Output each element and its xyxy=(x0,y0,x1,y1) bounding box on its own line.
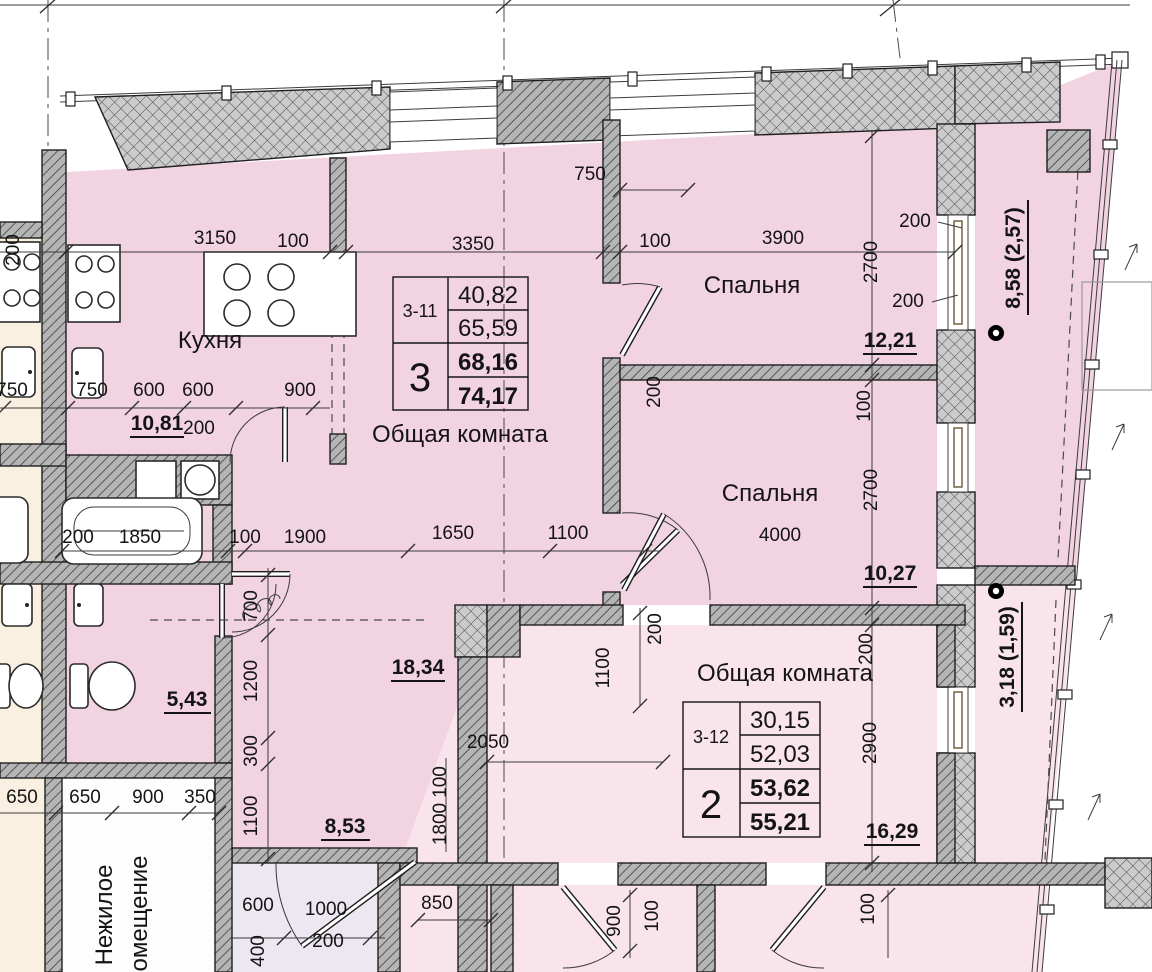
wall xyxy=(491,885,513,972)
wall xyxy=(603,358,620,513)
dimension-label: 750 xyxy=(0,380,28,401)
area-label: 5,43 xyxy=(167,688,208,711)
dimension-label: 850 xyxy=(421,893,453,914)
dimension-label: 200 xyxy=(312,931,344,952)
wall xyxy=(0,562,232,584)
dimension-label: 1650 xyxy=(432,523,474,544)
dimension-label: 4000 xyxy=(759,525,801,546)
dimension-label: 350 xyxy=(184,787,216,808)
dimension-label: 650 xyxy=(6,787,38,808)
window xyxy=(948,215,968,330)
wall xyxy=(520,605,623,625)
room-label-bedroom2: Спальня xyxy=(722,480,818,507)
dimension-label: 1100 xyxy=(241,796,262,837)
dimension-label: 100 xyxy=(642,900,663,932)
wall xyxy=(45,778,62,972)
dimension-label: 3350 xyxy=(452,234,494,255)
area-label: 18,34 xyxy=(392,656,445,679)
balcony-divider-wall xyxy=(975,566,1075,585)
dimension-label: 600 xyxy=(133,380,165,401)
wall xyxy=(710,605,965,625)
wall xyxy=(0,763,232,778)
room-label-living: Общая комната xyxy=(372,421,549,448)
dimension-label: 100 xyxy=(277,231,309,252)
apartment-number: 3-11 xyxy=(403,301,438,321)
apartment-area: 53,62 xyxy=(750,775,810,802)
wall xyxy=(937,753,955,863)
wall xyxy=(487,605,520,657)
wall-pier xyxy=(955,62,1060,124)
window-band-1 xyxy=(390,88,497,142)
dimension-label: 1800 xyxy=(430,803,451,845)
wall xyxy=(330,434,346,464)
wall-pier xyxy=(755,66,955,135)
dimension-label: 600 xyxy=(182,380,214,401)
apartment-rooms-count: 2 xyxy=(700,783,722,827)
dimension-label: 100 xyxy=(639,231,671,252)
dimension-label: 900 xyxy=(604,905,625,937)
dimension-label: 200 xyxy=(892,291,924,312)
wall xyxy=(0,444,66,466)
floor-plan: 3150 100 3350 100 3900 750 200 200 2700 … xyxy=(0,0,1152,972)
room-label-nonresidential: помещение xyxy=(126,855,153,972)
apartment-area: 74,17 xyxy=(458,383,518,410)
room-label-kitchen: Кухня xyxy=(178,327,242,354)
dimension-label: 200 xyxy=(3,234,24,266)
wall-pier xyxy=(455,605,487,657)
wall xyxy=(400,863,558,885)
dimension-label: 200 xyxy=(899,211,931,232)
apartment-area: 65,59 xyxy=(458,315,518,342)
dimension-label: 900 xyxy=(132,787,164,808)
dimension-label: 100 xyxy=(229,527,261,548)
balcony2-fill xyxy=(975,585,1076,863)
wall-pier xyxy=(937,330,975,423)
wall-pier xyxy=(937,492,975,568)
dimension-label: 2900 xyxy=(860,722,881,764)
apartment-rooms-count: 3 xyxy=(409,356,431,400)
apartment-area: 68,16 xyxy=(458,349,518,376)
dimension-label: 300 xyxy=(241,735,262,767)
dimension-label: 1000 xyxy=(305,899,347,920)
dimension-label: 3150 xyxy=(194,228,236,249)
area-label: 10,81 xyxy=(131,412,184,435)
dimension-label: 750 xyxy=(574,164,606,185)
apartment-area: 30,15 xyxy=(750,707,810,734)
apartment-area: 52,03 xyxy=(750,741,810,768)
wall xyxy=(697,885,715,972)
stove-icon xyxy=(68,245,120,322)
room-label-bedroom1: Спальня xyxy=(704,272,800,299)
area-label: 16,29 xyxy=(866,820,919,843)
area-label: 3,18 (1,59) xyxy=(996,606,1019,708)
wall xyxy=(215,778,232,972)
apartment-area: 55,21 xyxy=(750,809,810,836)
dimension-label: 1850 xyxy=(119,527,161,548)
area-label: 8,53 xyxy=(325,815,366,838)
area-label: 10,27 xyxy=(864,562,917,585)
wall xyxy=(620,365,937,380)
dimension-label: 200 xyxy=(183,418,215,439)
dimension-label: 1200 xyxy=(241,660,262,702)
dimension-label: 2050 xyxy=(467,732,509,753)
dimension-label: 900 xyxy=(284,380,316,401)
wall xyxy=(232,848,417,863)
dimension-label: 600 xyxy=(242,895,274,916)
wall xyxy=(458,657,487,972)
dimension-label: 1100 xyxy=(593,648,614,689)
window xyxy=(948,687,968,753)
wall-pier xyxy=(937,124,975,215)
dimension-label: 750 xyxy=(76,380,108,401)
dimension-label: 2700 xyxy=(861,469,882,511)
dimension-label: 3900 xyxy=(762,228,804,249)
balcony-column xyxy=(1047,130,1090,172)
room-label-living2: Общая комната xyxy=(697,660,874,687)
dimension-label: 200 xyxy=(645,613,666,645)
dimension-label: 650 xyxy=(69,787,101,808)
apartment-number: 3-12 xyxy=(693,727,729,747)
room-label-nonresidential: Нежилое xyxy=(91,865,118,966)
dimension-label: 200 xyxy=(62,527,94,548)
dimension-label: 100 xyxy=(858,893,879,925)
dimension-label: 100 xyxy=(854,390,875,422)
wall xyxy=(215,636,232,763)
window xyxy=(948,423,968,492)
area-label: 8,58 (2,57) xyxy=(1002,207,1025,309)
wall xyxy=(603,120,620,283)
wall-segment xyxy=(497,78,610,144)
wall xyxy=(618,863,766,885)
dimension-label: 400 xyxy=(248,935,269,967)
area-label: 12,21 xyxy=(864,329,917,352)
apartment-area: 40,82 xyxy=(458,282,518,309)
dimension-label: 1100 xyxy=(548,523,589,544)
kitchen-counter-icon xyxy=(204,252,356,336)
wall xyxy=(937,625,955,687)
dimension-label: 100 xyxy=(430,766,451,798)
dimension-label: 2700 xyxy=(861,241,882,283)
dimension-label: 700 xyxy=(241,590,262,622)
dimension-label: 1900 xyxy=(284,527,326,548)
wall-pier xyxy=(1105,858,1152,908)
dimension-label: 200 xyxy=(644,376,665,408)
